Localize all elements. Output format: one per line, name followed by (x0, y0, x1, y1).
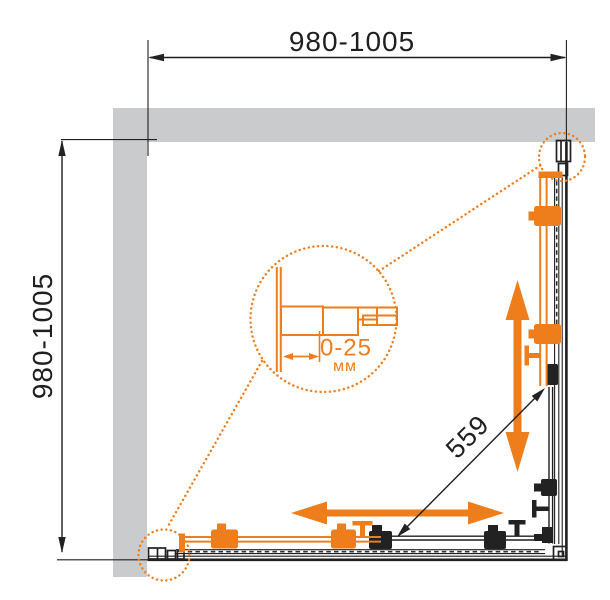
sliding-door-right-open (525, 172, 563, 387)
slide-arrow-vertical (506, 280, 530, 472)
arrowhead-right-icon (551, 54, 567, 61)
arrowhead-up-icon (58, 140, 65, 156)
wall-top (113, 108, 595, 142)
diagonal-dimension-label: 559 (440, 409, 495, 464)
sliding-door-bottom-open (179, 521, 381, 553)
shower-dimension-diagram: 980-1005 980-1005 (0, 0, 610, 600)
wall-left (113, 108, 147, 577)
roller-icon (331, 530, 356, 549)
roller-icon (484, 531, 506, 549)
roller-icon (211, 530, 238, 549)
handle-icon (509, 520, 526, 525)
arrowhead-down-icon (58, 537, 65, 553)
top-dimension-label: 980-1005 (289, 26, 415, 57)
fixed-panel-bottom (176, 550, 545, 554)
wall-profile-top-right (557, 141, 571, 176)
slide-arrow-horizontal (291, 502, 504, 525)
roller-icon (541, 479, 557, 496)
detail-unit-label: мм (333, 358, 357, 375)
roller-icon (534, 324, 561, 344)
left-dimension-label: 980-1005 (27, 273, 58, 399)
roller-icon (369, 531, 392, 549)
detail-dimension: 0-25 мм (283, 331, 372, 375)
sliding-door-bottom-closed (369, 520, 544, 549)
handle-icon (353, 521, 373, 526)
arrowhead-left-icon (148, 54, 164, 61)
roller-icon (534, 206, 561, 226)
handle-icon (537, 507, 550, 512)
